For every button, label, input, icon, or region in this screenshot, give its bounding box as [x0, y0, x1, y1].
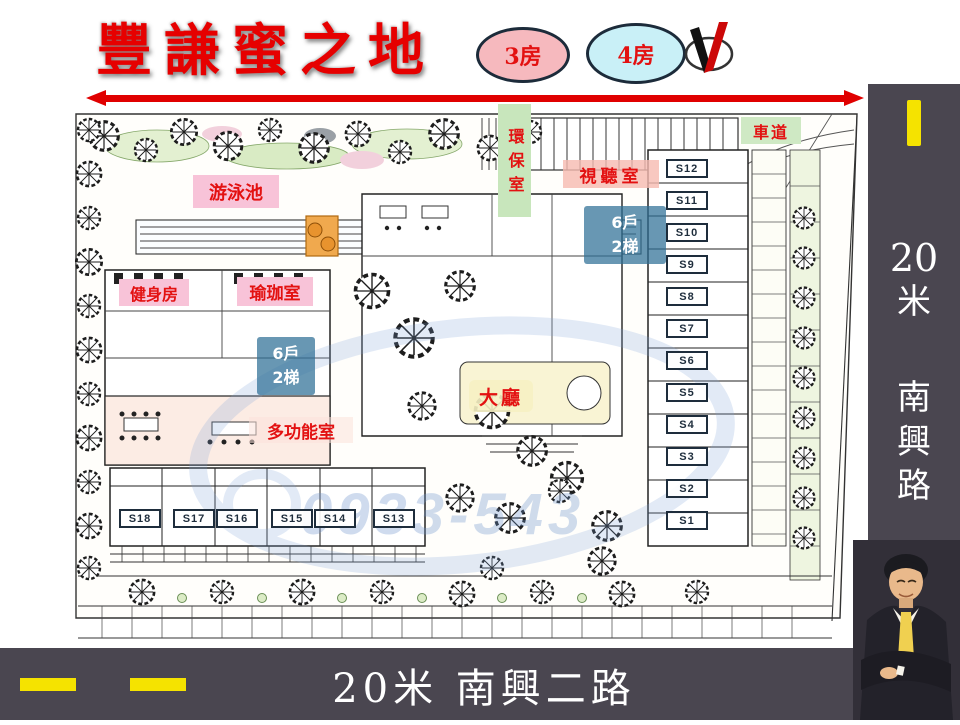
unit-tag: S12 [666, 159, 708, 178]
page-title: 豐謙蜜之地 [96, 6, 436, 87]
badge-3-bedroom: 3房 [476, 27, 570, 83]
badge-4-bedroom-label: 4房 [617, 38, 654, 70]
unit-tag: S15 [271, 509, 313, 528]
unit-tag: S3 [666, 447, 708, 466]
site-plan: 0933-543 游泳池 環保室 視聽室 車道 健身房 瑜珈室 大廳 多功能室 … [62, 106, 868, 644]
badge-4-bedroom: 4房 [586, 23, 686, 84]
road-width-number: 20 [868, 236, 960, 280]
unit-tag: S14 [314, 509, 356, 528]
note-6-households-2-lifts-right: 6戶 2梯 [584, 206, 666, 264]
site-plan-drawing: 0933-543 [62, 106, 868, 644]
road-name-char: 路 [868, 464, 960, 508]
label-swimming-pool: 游泳池 [193, 175, 279, 208]
road-name-char: 南 [868, 376, 960, 420]
unit-tag: S8 [666, 287, 708, 306]
unit-tag: S17 [173, 509, 215, 528]
unit-tag: S10 [666, 223, 708, 242]
unit-tag: S2 [666, 479, 708, 498]
road-name-char: 興 [868, 420, 960, 464]
unit-tag: S13 [373, 509, 415, 528]
unit-tag: S11 [666, 191, 708, 210]
right-road-name: 20 米 南 興 路 [868, 236, 960, 508]
unit-tag: S1 [666, 511, 708, 530]
label-recycling-room: 環保室 [498, 104, 531, 217]
road-lane-dash [907, 100, 921, 146]
unit-tag: S6 [666, 351, 708, 370]
bottom-road-name: 20米 南興二路 [100, 656, 868, 714]
label-gym: 健身房 [119, 279, 189, 306]
compass-north-icon [682, 20, 736, 82]
label-multipurpose-room: 多功能室 [249, 417, 353, 443]
road-width-unit: 米 [868, 280, 960, 324]
unit-tag: S9 [666, 255, 708, 274]
unit-tag: S16 [216, 509, 258, 528]
site-width-arrow [86, 90, 864, 106]
arrow-shaft [98, 95, 852, 102]
badge-3-bedroom-label: 3房 [504, 39, 541, 71]
note-households: 6戶 [272, 342, 299, 366]
agent-photo [853, 540, 960, 720]
note-6-households-2-lifts-left: 6戶 2梯 [257, 337, 315, 395]
note-elevators: 2梯 [272, 366, 299, 390]
road-lane-dash [20, 678, 76, 691]
label-yoga-room: 瑜珈室 [237, 277, 313, 306]
note-households: 6戶 [611, 211, 638, 235]
unit-tag: S4 [666, 415, 708, 434]
note-elevators: 2梯 [611, 235, 638, 259]
bottom-road-bar: 20米 南興二路 [0, 648, 960, 720]
unit-tag: S5 [666, 383, 708, 402]
label-driveway: 車道 [741, 117, 801, 144]
label-lobby: 大廳 [469, 380, 533, 412]
unit-tag: S18 [119, 509, 161, 528]
unit-tag: S7 [666, 319, 708, 338]
arrow-right-head [844, 90, 864, 106]
label-av-room: 視聽室 [563, 160, 659, 188]
